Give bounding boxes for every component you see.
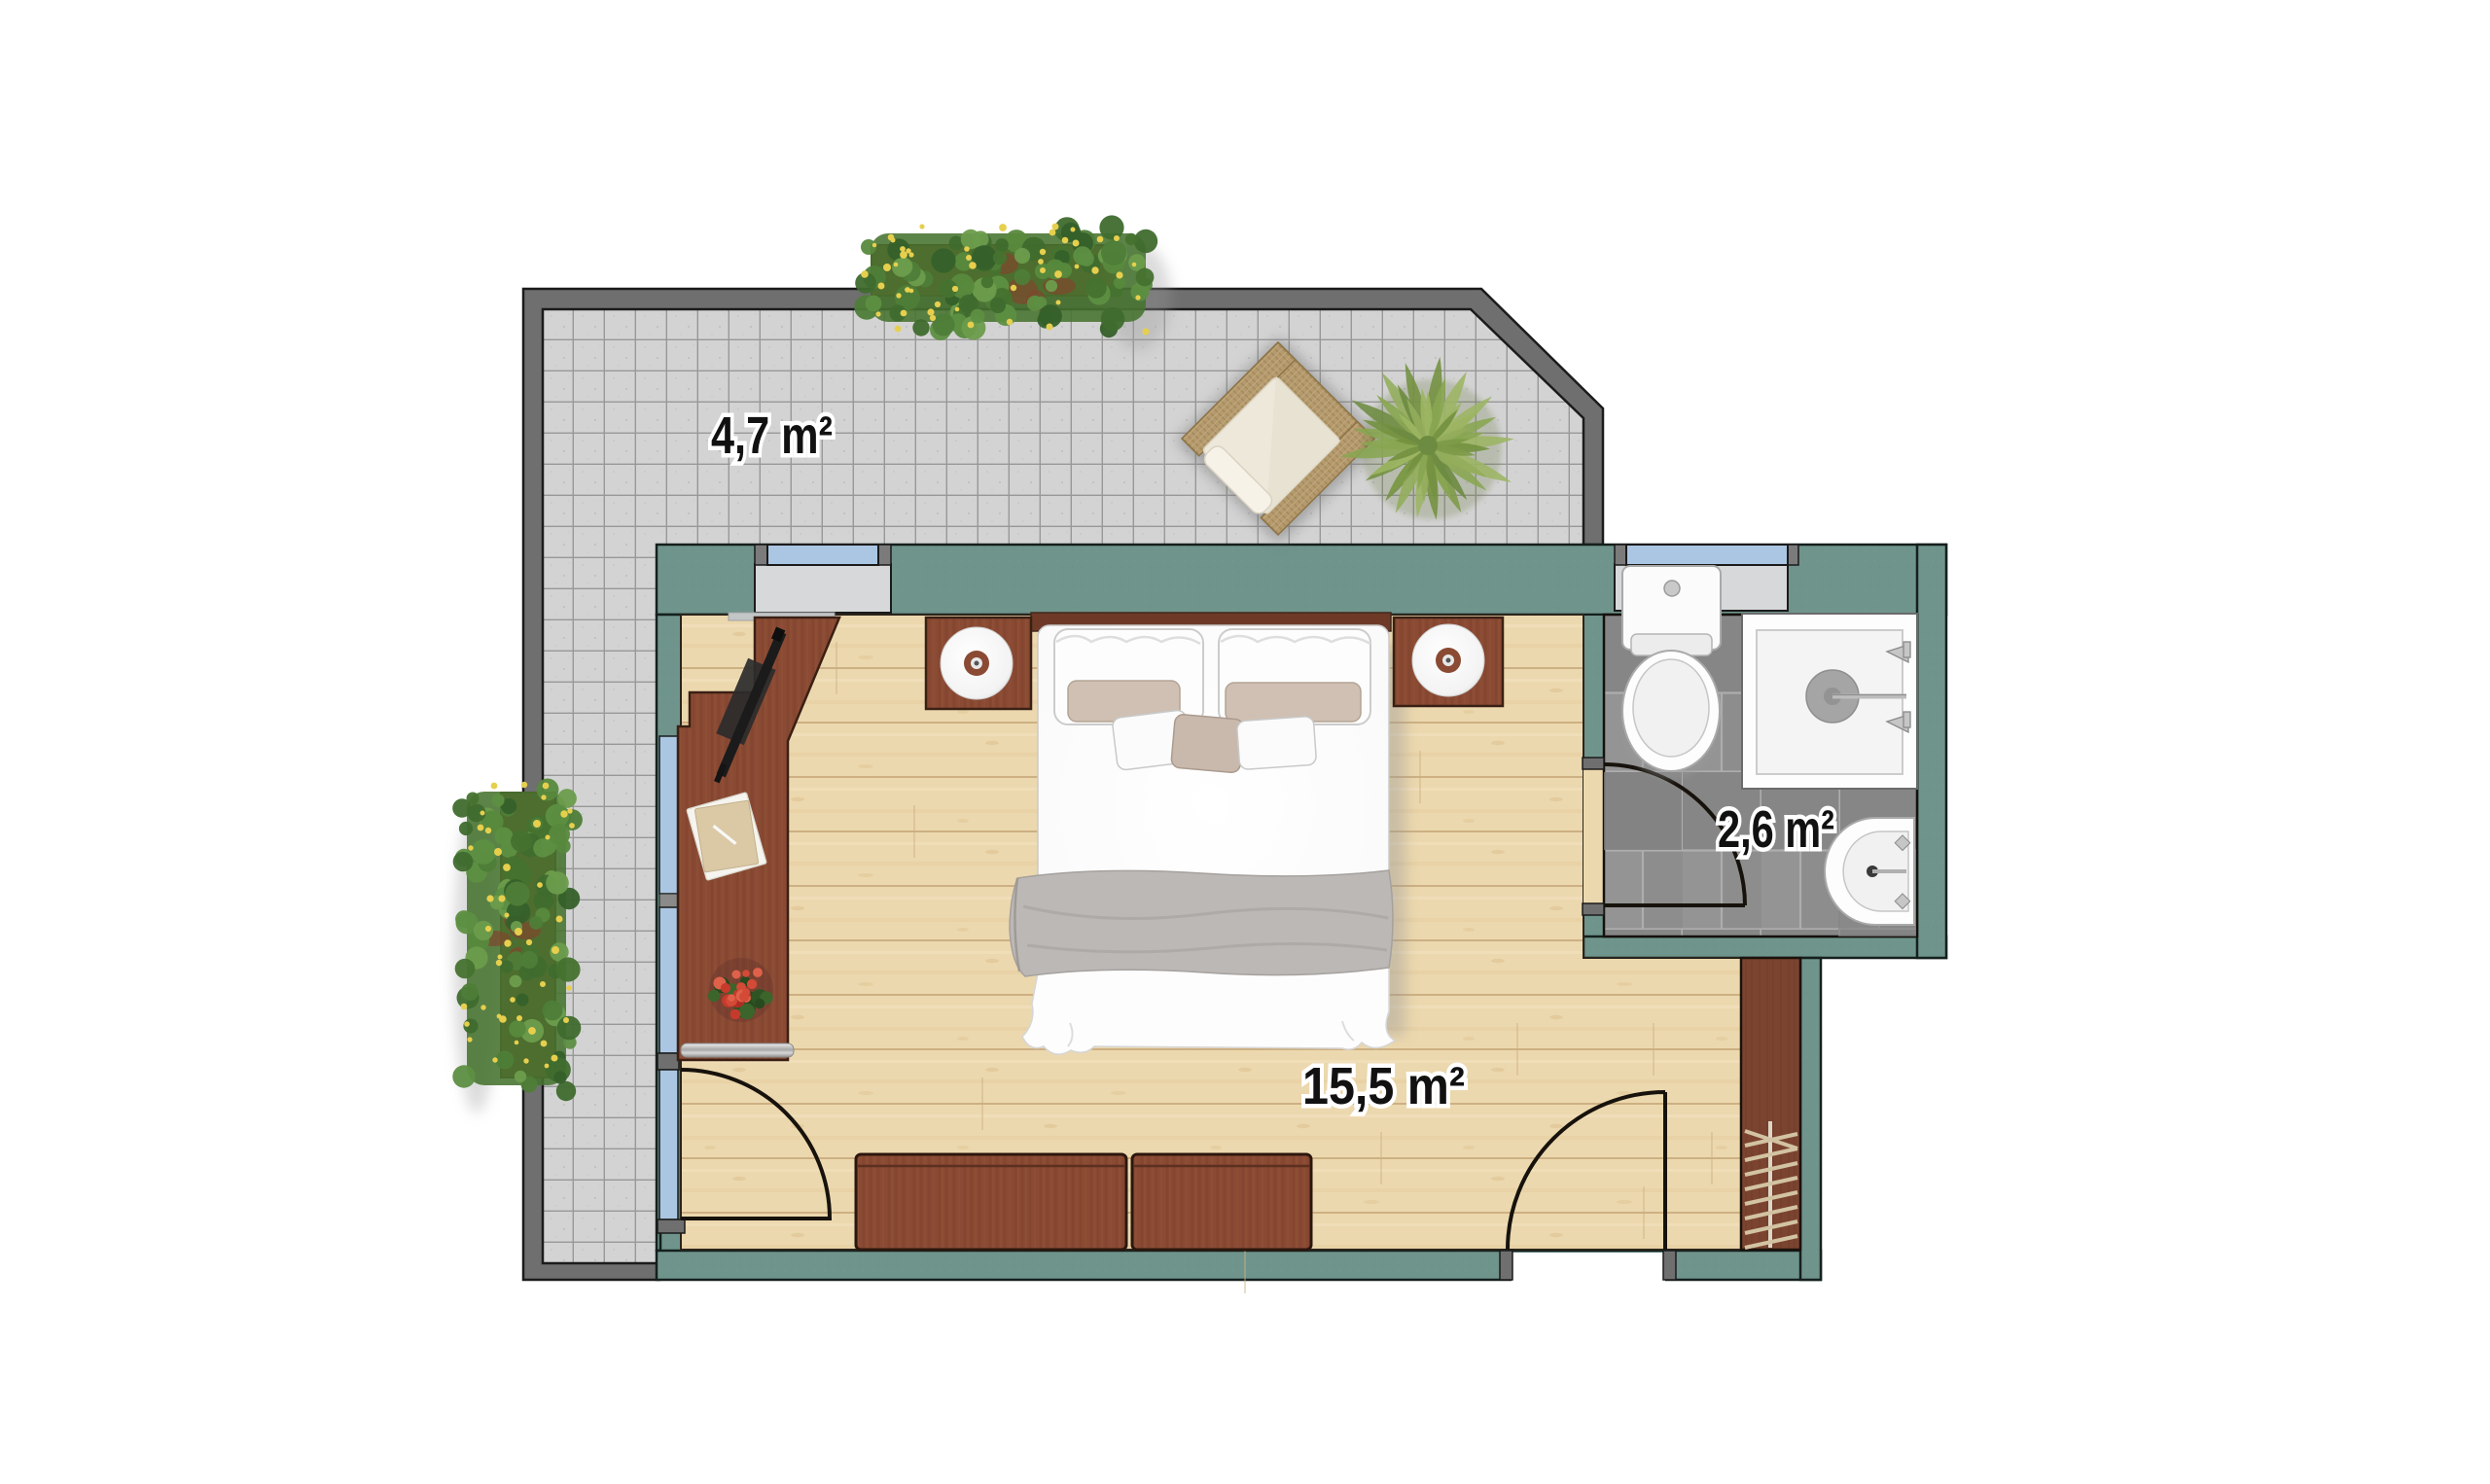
svg-text:15,5 m²: 15,5 m² [1302, 1057, 1465, 1115]
svg-text:4,7 m²: 4,7 m² [711, 406, 833, 465]
svg-text:2,6 m²: 2,6 m² [1718, 800, 1834, 859]
